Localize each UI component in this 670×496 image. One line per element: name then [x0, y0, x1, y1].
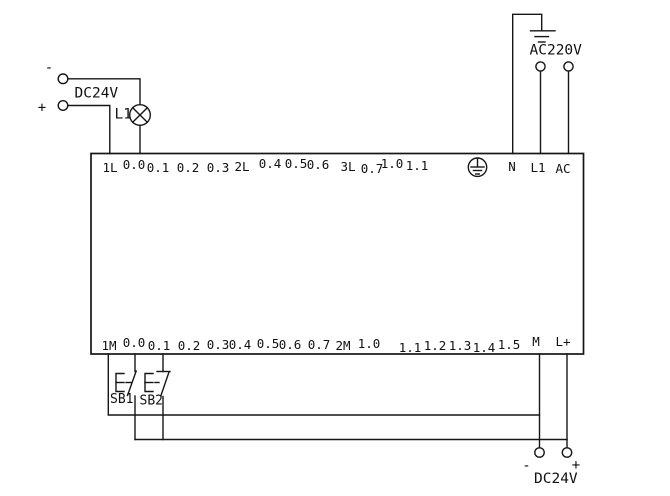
terminal-label: L1: [530, 160, 545, 175]
terminal-label: 1.0: [358, 336, 381, 351]
input-wiring: [108, 354, 567, 448]
pushbutton-sb1: SB1: [110, 354, 136, 440]
plc-top-terminal-row: 1L 0.0 0.1 0.2 0.3 2L 0.4 0.5 0.6 3L 0.7…: [102, 156, 570, 176]
ac220v-label: AC220V: [530, 43, 583, 59]
terminal-label: 0.5: [257, 336, 280, 351]
wiring-diagram: 1L 0.0 0.1 0.2 0.3 2L 0.4 0.5 0.6 3L 0.7…: [0, 0, 670, 496]
pushbutton-sb2: SB2: [140, 354, 171, 440]
terminal-label: 0.0: [123, 157, 146, 172]
plc-body-outline: [91, 154, 584, 355]
terminal-label: 1.0: [381, 156, 404, 171]
terminal-label: 1M: [101, 338, 116, 353]
terminal-label: 0.3: [207, 160, 230, 175]
terminal-label: 0.5: [285, 156, 308, 171]
earth-ground-icon: [531, 31, 556, 42]
terminal-label: 0.6: [279, 337, 302, 352]
terminal-label: 0.0: [123, 335, 146, 350]
plc-bottom-terminal-row: 1M 0.0 0.1 0.2 0.3 0.4 0.5 0.6 0.7 2M 1.…: [101, 334, 570, 355]
ac-terminal-circle-left: [536, 62, 545, 71]
dc24v-bottom-label: DC24V: [534, 471, 578, 487]
sb2-actuator-icon: [145, 374, 159, 392]
terminal-label: 0.7: [308, 337, 331, 352]
terminal-label: 0.4: [259, 156, 282, 171]
sb1-label: SB1: [110, 392, 133, 407]
dc24v-top-label: DC24V: [75, 86, 119, 102]
ac-terminal-circle-right: [564, 62, 573, 71]
plus-sign: +: [38, 100, 46, 116]
sb2-label: SB2: [140, 394, 163, 409]
dc-minus-terminal-circle: [535, 448, 544, 457]
terminal-label: M: [532, 334, 540, 349]
minus-sign: -: [522, 458, 530, 474]
terminal-label: AC: [555, 161, 570, 176]
minus-sign: -: [45, 60, 53, 76]
dc24v-source-bottom: - + DC24V: [522, 448, 580, 487]
terminal-label: 0.4: [229, 337, 252, 352]
dc-plus-terminal-circle: [562, 448, 571, 457]
terminal-label: 1.4: [473, 340, 496, 355]
wire-plus-to-1L: [68, 106, 110, 154]
wire-1M-to-M: [108, 354, 539, 415]
sb2-contact-blade: [161, 372, 169, 396]
terminal-label: 0.3: [207, 337, 230, 352]
plc-module: 1L 0.0 0.1 0.2 0.3 2L 0.4 0.5 0.6 3L 0.7…: [91, 154, 584, 356]
lamp-L1: L1: [115, 105, 151, 154]
terminal-label: 0.6: [307, 157, 330, 172]
dc-plus-terminal-circle: [58, 101, 68, 111]
wire-N-to-ground: [513, 14, 542, 153]
terminal-label: 0.2: [177, 160, 200, 175]
ac220v-source: AC220V: [513, 14, 582, 153]
terminal-label: N: [508, 159, 516, 174]
terminal-label: 1.5: [498, 337, 521, 352]
sb1-actuator-icon: [116, 374, 131, 392]
terminal-label: 1L: [102, 160, 117, 175]
diagram-svg: 1L 0.0 0.1 0.2 0.3 2L 0.4 0.5 0.6 3L 0.7…: [0, 0, 670, 496]
terminal-label: 1.1: [406, 158, 429, 173]
lamp-icon: [130, 105, 151, 126]
terminal-label: 1.1: [399, 340, 422, 355]
terminal-label: 1.2: [424, 338, 447, 353]
terminal-label: 0.1: [147, 160, 170, 175]
terminal-label: 2L: [234, 159, 249, 174]
terminal-label: 1.3: [449, 338, 472, 353]
terminal-label: 2M: [335, 338, 350, 353]
terminal-label: 0.2: [178, 338, 201, 353]
terminal-label: 0.1: [148, 338, 171, 353]
terminal-label: 3L: [340, 159, 355, 174]
protective-earth-icon: [468, 158, 486, 176]
dc-minus-terminal-circle: [58, 74, 68, 84]
terminal-label: L+: [555, 334, 570, 349]
